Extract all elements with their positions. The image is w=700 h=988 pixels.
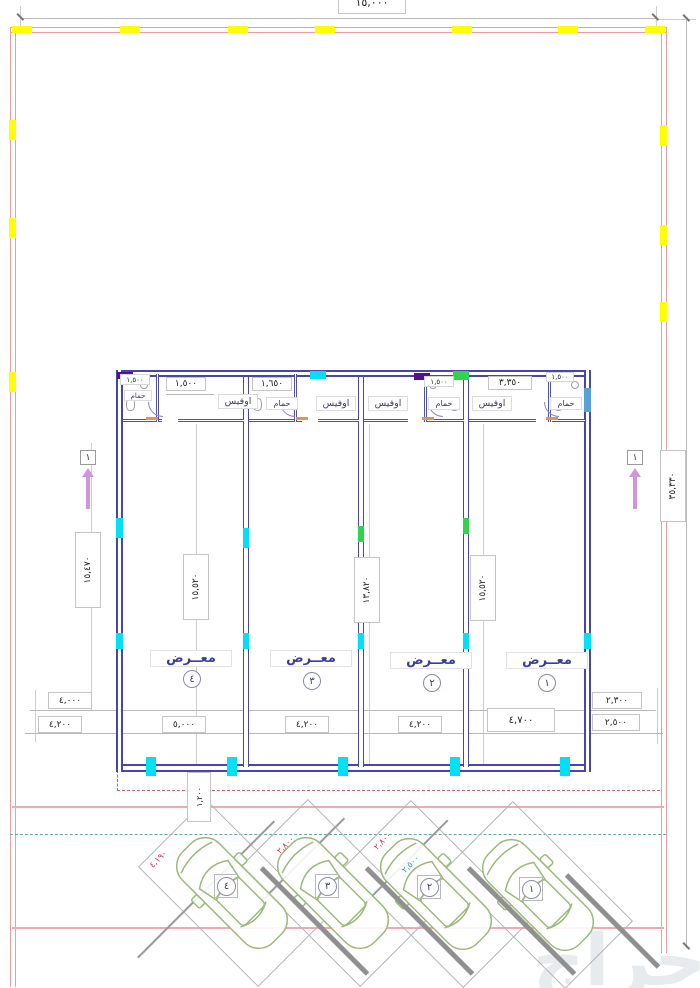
wall-highlight-cyan <box>243 633 249 649</box>
office-label-unit2: اوفيس <box>368 396 408 411</box>
boundary-yellow-marker <box>558 26 578 33</box>
office-partition-wall <box>469 419 536 422</box>
right-height-dimension-value: ٣٥,٣٣٠ <box>668 472 678 499</box>
unit3-width-dim: ٤,٢٠٠ <box>285 716 329 733</box>
door-marker-cyan <box>146 757 156 776</box>
threshold-marker <box>296 417 308 420</box>
left-dim-4000: ٤,٠٠٠ <box>48 692 92 709</box>
office-partition-wall <box>318 419 359 422</box>
section-marker-right: ١ <box>627 450 643 465</box>
dim-text: ١,٥٠٠ <box>430 378 447 386</box>
wall-highlight-cyan <box>310 371 326 379</box>
section-marker-left: ١ <box>80 450 96 465</box>
bath-label-text: حمام <box>436 399 453 408</box>
threshold-marker <box>146 417 158 420</box>
left-height-dimension-value: ١٥,٤٧٠ <box>83 556 93 583</box>
showroom-number-4: ٤ <box>183 670 201 688</box>
door-swing-arc <box>148 402 163 417</box>
wall-highlight-green <box>463 518 469 534</box>
setback-dashed-line <box>117 770 119 791</box>
door-marker-blue <box>584 388 591 412</box>
dimension-line-row1 <box>30 710 656 711</box>
bath-label-text: حمام <box>558 399 575 408</box>
wall-highlight-green <box>453 371 469 380</box>
dim-arrow-line <box>166 394 214 395</box>
bath-dim-unit3: ١,٦٥٠ <box>252 377 292 391</box>
unit4-width-dim: ٥,٠٠٠ <box>162 716 206 733</box>
wall-highlight-cyan <box>116 518 123 538</box>
showroom-number-text: ١ <box>544 678 549 689</box>
office-label-text: اوفيس <box>323 398 350 409</box>
section-marker-text: ١ <box>633 453 638 463</box>
boundary-yellow-marker <box>120 26 140 33</box>
setback-dimension: ١,٢٠٠ <box>187 772 211 822</box>
dim-text: ٤,٢٠٠ <box>409 720 431 730</box>
bath-label-unit1: حمام <box>550 397 582 410</box>
bath-label-unit3: حمام <box>266 397 298 410</box>
wall-highlight-cyan <box>463 633 469 649</box>
building-wall-left <box>116 370 123 772</box>
dim-text: ١٣,٨٢٠ <box>362 576 372 603</box>
bath-dim-unit2: ١,٥٠٠ <box>424 376 454 387</box>
boundary-yellow-marker <box>452 26 472 33</box>
dim-text: ١,٦٥٠ <box>261 379 283 389</box>
wall-highlight-cyan <box>116 633 123 649</box>
dim-text: ١,٥٠٠ <box>175 379 197 389</box>
dim-text: ١٥,٥٢٠ <box>478 574 488 601</box>
showroom-label-1: معــرض <box>506 652 588 669</box>
extension-line <box>657 688 658 744</box>
office-partition-wall <box>178 419 244 422</box>
threshold-marker <box>422 417 434 420</box>
boundary-yellow-marker <box>660 125 667 145</box>
top-dimension-line <box>20 18 656 19</box>
left-height-dimension: ١٥,٤٧٠ <box>75 532 101 608</box>
stall-number-3: ٣ <box>318 877 337 896</box>
boundary-yellow-marker <box>9 218 16 238</box>
section-marker-text: ١ <box>86 453 91 463</box>
dim-text: ٤,٧٠٠ <box>509 715 534 726</box>
boundary-left <box>10 27 16 987</box>
right-dimension-line <box>686 19 687 948</box>
showroom-label-text: معــرض <box>406 653 456 668</box>
door-marker-cyan <box>560 757 570 776</box>
boundary-yellow-marker <box>645 26 665 33</box>
stall-number-1: ١ <box>522 880 541 899</box>
top-width-dimension: ١٥,٠٠٠ <box>338 0 406 14</box>
wall-highlight-green <box>358 526 364 542</box>
bath-label-text: حمام <box>131 392 146 400</box>
office-label-text: اوفيس <box>375 398 402 409</box>
showroom-label-text: معــرض <box>522 653 572 668</box>
boundary-yellow-marker <box>315 26 335 33</box>
boundary-yellow-marker <box>228 26 248 33</box>
stall-number-text: ٤ <box>224 881 229 892</box>
bath-label-unit4: حمام <box>124 390 152 401</box>
sink-fixture <box>571 381 579 389</box>
wall-highlight-cyan <box>358 633 364 649</box>
stall-number-2: ٢ <box>420 878 439 897</box>
stall-number-text: ٢ <box>427 882 432 893</box>
section-arrow-right <box>629 468 641 477</box>
showroom-number-1: ١ <box>538 674 556 692</box>
office-dim-unit1: ٣,٣٥٠ <box>488 376 532 390</box>
office-dim-unit4: ١,٥٠٠ <box>166 377 206 391</box>
threshold-marker <box>546 417 558 420</box>
dim-text: ١,٥٠٠ <box>126 376 143 384</box>
right-dim-2300: ٢,٣٠٠ <box>592 692 642 709</box>
boundary-yellow-marker <box>660 302 667 322</box>
stall-number-text: ١ <box>529 884 534 895</box>
dim-text: ٤,٢٠٠ <box>296 720 318 730</box>
bath-label-text: حمام <box>274 399 291 408</box>
showroom-label-4: معــرض <box>150 650 232 667</box>
showroom-number-text: ٣ <box>309 676 314 687</box>
section-arrow-stem <box>86 477 90 509</box>
office-label-text: اوفيس <box>479 398 506 409</box>
office-label-text: اوفيس <box>225 396 252 407</box>
wall-highlight-cyan <box>584 633 591 649</box>
dim-text: ٤,٠٠٠ <box>59 696 81 706</box>
dim-text: ١٥,٥٢٠ <box>191 573 201 600</box>
building-wall-bottom <box>116 764 591 772</box>
section-arrow-stem <box>633 477 637 509</box>
boundary-line-mid <box>12 806 664 808</box>
unit-divider-wall <box>243 377 249 767</box>
left-dim-4200: ٤,٢٠٠ <box>38 716 82 733</box>
right-height-dimension: ٣٥,٣٣٠ <box>660 450 686 522</box>
boundary-yellow-marker <box>660 225 667 245</box>
column-dimension-1: ١٥,٥٢٠ <box>183 554 209 620</box>
office-label-unit3: اوفيس <box>316 396 356 411</box>
stall-number-text: ٣ <box>325 881 330 892</box>
office-label-unit4: اوفيس <box>218 394 258 409</box>
showroom-number-3: ٣ <box>303 672 321 690</box>
dim-text: ٣,٣٥٠ <box>499 378 521 388</box>
dim-text: ٤,٢٠٠ <box>49 720 71 730</box>
dim-text: ٢,٣٠٠ <box>606 696 628 706</box>
bath-dim-unit4: ١,٥٠٠ <box>120 374 150 385</box>
office-partition-wall <box>364 419 408 422</box>
boundary-yellow-marker <box>9 372 16 392</box>
section-arrow-left <box>82 468 94 477</box>
wall-highlight-cyan <box>243 528 249 548</box>
building-wall-right <box>584 370 591 772</box>
showroom-number-text: ٢ <box>429 678 434 689</box>
right-dim-2500: ٢,٥٠٠ <box>592 714 640 731</box>
unit1-width-dim: ٤,٧٠٠ <box>487 708 555 732</box>
showroom-number-2: ٢ <box>423 674 441 692</box>
stall-number-4: ٤ <box>217 877 236 896</box>
boundary-yellow-marker <box>9 120 16 140</box>
extension-line <box>35 690 36 742</box>
office-label-unit1: اوفيس <box>472 396 512 411</box>
dim-text: ١,٢٠٠ <box>195 787 204 807</box>
showroom-label-text: معــرض <box>286 651 336 666</box>
bath-dim-unit1: ١,٥٠٠ <box>546 372 574 382</box>
showroom-number-text: ٤ <box>189 674 194 685</box>
door-marker-cyan <box>338 757 348 776</box>
top-width-dimension-value: ١٥,٠٠٠ <box>355 0 388 9</box>
door-marker-cyan <box>450 757 460 776</box>
column-dimension-2: ١٣,٨٢٠ <box>354 557 380 623</box>
showroom-label-3: معــرض <box>270 650 352 667</box>
showroom-label-text: معــرض <box>166 651 216 666</box>
unit2-width-dim: ٤,٢٠٠ <box>398 716 442 733</box>
bath-label-unit2: حمام <box>428 397 460 410</box>
door-marker-cyan <box>227 757 237 776</box>
unit-divider-wall <box>463 377 469 767</box>
dim-text: ٥,٠٠٠ <box>173 720 195 730</box>
dim-text: ١,٥٠٠ <box>551 373 568 381</box>
column-dimension-3: ١٥,٥٢٠ <box>470 555 496 621</box>
site-plan-drawing: ١٥,٠٠٠ ٣٥,٣٣٠ ١٥,٤٧٠ <box>0 0 700 988</box>
showroom-label-2: معــرض <box>390 652 472 669</box>
dim-text: ٢,٥٠٠ <box>605 718 627 728</box>
boundary-yellow-marker <box>12 26 32 33</box>
